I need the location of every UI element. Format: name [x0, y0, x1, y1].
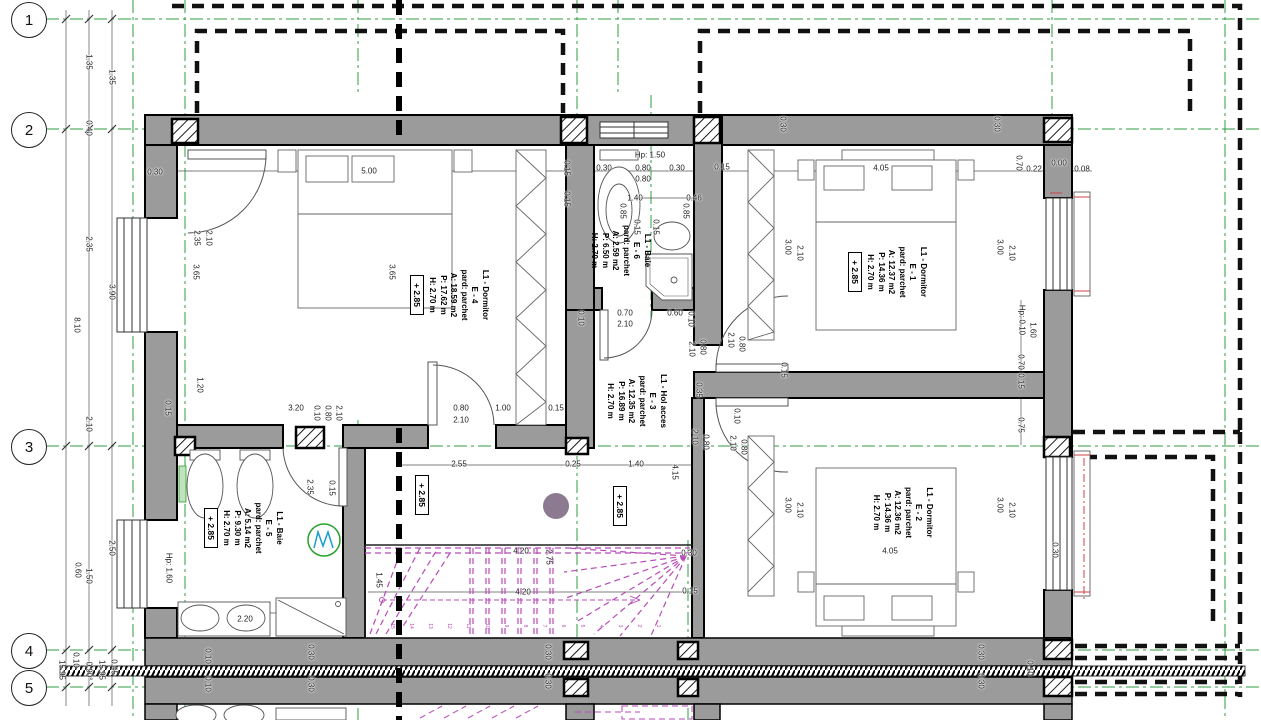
shower-e5: [276, 598, 346, 636]
grid-axis-bubble-5: 5: [11, 670, 47, 706]
dimension-label: 0.15: [563, 191, 572, 207]
dimension-label: 2.10: [691, 429, 700, 445]
door-closet-e4: [188, 150, 266, 233]
stair-tread-number: 7: [541, 625, 547, 628]
window-left-2: [117, 520, 147, 608]
room-area: A: 12.35 m2: [626, 366, 637, 436]
grid-axis-bubble-1: 1: [11, 2, 47, 38]
dimension-label: 0.80: [738, 336, 747, 352]
stair-tread-number: 12: [446, 623, 452, 629]
room-height: H: 2.70 m: [589, 203, 600, 298]
dimension-label: 0.25: [565, 460, 581, 469]
room-code: E - 3: [647, 366, 658, 436]
room-perimeter: P: 14.36 m: [876, 228, 887, 316]
dimension-label: 0.85: [682, 203, 691, 219]
room-name: L1 - Dormitor: [918, 228, 929, 316]
room-height: H: 2.70 m: [221, 492, 232, 564]
room-name: L1 - Dormitor: [924, 470, 935, 555]
floor-plan-drawing: [0, 0, 1261, 720]
room-name: L1 - Baie: [274, 492, 285, 564]
grid-axis-label: 4: [25, 643, 33, 660]
room-code: E - 2: [913, 470, 924, 555]
room-code: E - 1: [907, 228, 918, 316]
dimension-label: 0.30: [307, 644, 316, 660]
dimension-label: 1.40: [628, 460, 644, 469]
dimension-label: 2.20: [237, 615, 253, 624]
dimension-label: 0.15: [563, 160, 572, 176]
dimension-label: 4.15: [671, 464, 680, 480]
dimension-label: 0.30: [1051, 542, 1060, 558]
wardrobe-e1: [748, 150, 774, 340]
stair-tread-number: 3: [617, 625, 623, 628]
stair-tread-number: 6: [560, 625, 566, 628]
room-area: A: 12.37 m2: [886, 228, 897, 316]
column-dot: [543, 493, 569, 519]
dimension-label: 1.45: [375, 572, 384, 588]
level-marker: + 2.85: [204, 508, 218, 548]
room-height: H: 2.70 m: [605, 366, 616, 436]
dimension-label: 3.00: [996, 239, 1005, 255]
dimension-label: 0.46: [686, 194, 702, 203]
dimension-label: 2.10: [85, 416, 94, 432]
dimension-label: 0.80: [635, 175, 651, 184]
dimension-label: 0.30: [779, 116, 788, 132]
dimension-label: 0.10: [1026, 660, 1035, 676]
dimension-label: 3.00: [996, 497, 1005, 513]
wardrobe-e2: [748, 436, 774, 596]
room-name: L1 - Dormitor: [480, 245, 491, 345]
dimension-label: 0.30: [993, 116, 1002, 132]
dimension-label: 0.15: [548, 404, 564, 413]
room-floor-finish: pard: parchet: [903, 470, 914, 555]
dimension-label: 0.15: [328, 480, 337, 496]
level-marker: + 2.85: [613, 486, 627, 526]
hall-level-marker-1: + 2.85: [414, 462, 432, 528]
dimension-label: 0.10: [687, 311, 696, 327]
stair-tread-number: 5: [579, 625, 585, 628]
dimension-label: 2.55: [451, 460, 467, 469]
dimension-label: 1.00: [495, 404, 511, 413]
room-floor-finish: pard: parchet: [637, 366, 648, 436]
stair-tread-number: 8: [522, 625, 528, 628]
dimension-label: 15.95: [58, 660, 67, 680]
dimension-label: Hp: 1.60: [165, 553, 174, 583]
dimension-label: 0.10: [72, 652, 81, 668]
dimension-label: 3.65: [388, 264, 397, 280]
dimension-label: 0.10: [204, 648, 213, 664]
dimension-label: 1.35: [85, 54, 94, 70]
room-label-e2: L1 - Dormitor E - 2 pard: parchet A: 12.…: [871, 470, 934, 555]
stair-tread-number: 14: [408, 623, 414, 629]
grid-axis-bubble-3: 3: [11, 429, 47, 465]
dimension-label: 0.80: [324, 405, 333, 421]
dimension-label: 0.80: [740, 439, 749, 455]
dimension-label: 0.15: [633, 219, 642, 235]
dimension-label: 0.45: [110, 659, 119, 675]
dimension-label: 1.60: [1029, 322, 1038, 338]
dimension-label: 0.10: [313, 405, 322, 421]
dimension-label: 0.30: [977, 673, 986, 689]
room-height: H: 2.70 m: [427, 245, 438, 345]
room-perimeter: P: 14.36 m: [882, 470, 893, 555]
room-name: L1 - Baie: [642, 203, 653, 298]
dimension-label: 0.75: [1017, 417, 1026, 433]
dimension-label: 4.20: [515, 588, 531, 597]
stair-tread-number: 9: [503, 625, 509, 628]
dimension-label: 4.05: [882, 547, 898, 556]
dimension-label: 0.08: [1074, 165, 1090, 174]
dimension-label: 0.80: [635, 164, 651, 173]
dimension-label: 0.70: [1017, 354, 1026, 370]
dimension-label: 0.60: [74, 562, 83, 578]
stairs-lower-unit: [420, 706, 692, 719]
dimension-label: 2.35: [85, 236, 94, 252]
dimension-label: Hp: 1.50: [635, 151, 665, 160]
dimension-label: 0.10: [204, 676, 213, 692]
door-e5: [283, 448, 347, 506]
dimension-label: 2.10: [1008, 245, 1017, 261]
stair-tread-number: 1: [655, 625, 661, 628]
stair-tread-number: 13: [427, 623, 433, 629]
room-perimeter: P: 17.62 m: [438, 245, 449, 345]
dimension-label: 2.35: [306, 479, 315, 495]
dimension-label: 0.15: [652, 219, 661, 235]
hall-level-marker-2: + 2.85: [612, 476, 630, 536]
room-floor-finish: pard: parchet: [897, 228, 908, 316]
dimension-label: 0.15: [682, 587, 698, 596]
dimension-label: 2.10: [796, 245, 805, 261]
dimension-label: 0.30: [977, 644, 986, 660]
room-floor-finish: pard: parchet: [459, 245, 470, 345]
dimension-label: 3.00: [784, 497, 793, 513]
door-e6: [600, 310, 652, 360]
room-label-e5: L1 - Baie E - 5 pard: parchet A: 5.14 m2…: [204, 492, 284, 564]
dimension-label: 0.30: [669, 164, 685, 173]
dimension-label: 0.15: [780, 362, 789, 378]
dimension-label: 2.10: [453, 416, 469, 425]
dimension-label: Hp: 0.10: [1018, 305, 1027, 335]
dimension-label: 3.65: [192, 264, 201, 280]
dimension-label: 0.10: [577, 310, 586, 326]
dimension-label: 3.90: [108, 284, 117, 300]
stair-tread-number: 4: [598, 625, 604, 628]
dimension-label: 2.10: [335, 405, 344, 421]
stair-tread-number: 15: [389, 623, 395, 629]
dimension-label: 0.85: [619, 203, 628, 219]
dimension-label: 2.50: [108, 540, 117, 556]
dimension-label: 0.30: [307, 676, 316, 692]
dimension-label: 2.10: [796, 502, 805, 518]
grid-axis-label: 3: [25, 439, 33, 456]
grid-axis-label: 2: [25, 122, 33, 139]
dimension-label: 0.10: [733, 408, 742, 424]
grid-axis-label: 5: [25, 680, 33, 697]
room-label-e1: L1 - Dormitor E - 1 pard: parchet A: 12.…: [848, 228, 928, 316]
dimension-label: 0.70: [617, 309, 633, 318]
stairs-walk-line: [380, 596, 641, 604]
window-bath-top: [600, 122, 668, 138]
room-label-e3: L1 - Hol acces E - 3 pard: parchet A: 12…: [605, 366, 668, 436]
dimension-label: 0.30: [544, 644, 553, 660]
room-floor-finish: pard: parchet: [253, 492, 264, 564]
dimension-label: 0.70: [1015, 155, 1024, 171]
dimension-label: 0.90°: [85, 662, 94, 681]
window-left-1: [117, 218, 147, 332]
grid-axis-label: 1: [25, 12, 33, 29]
room-height: H: 2.70 m: [871, 470, 882, 555]
dimension-label: 1.50: [85, 568, 94, 584]
dimension-label: 0.80: [702, 434, 711, 450]
dimension-label: 0.30: [147, 168, 163, 177]
dimension-label: 0.35: [695, 382, 704, 398]
room-name: L1 - Hol acces: [658, 366, 669, 436]
room-perimeter: P: 16.89 m: [616, 366, 627, 436]
dimension-label: 0.22: [1026, 165, 1042, 174]
dimension-label: 15.95: [98, 660, 107, 680]
washing-machine-icon: [308, 524, 340, 556]
dimension-label: 0.60: [667, 309, 683, 318]
room-label-e4: L1 - Dormitor E - 4 pard: parchet A: 18.…: [410, 245, 490, 345]
grid-axis-bubble-2: 2: [11, 112, 47, 148]
stair-tread-number: 10: [484, 623, 490, 629]
dimension-label: 0.30: [544, 673, 553, 689]
dimension-label: 5.00: [361, 167, 377, 176]
floor-plan-sheet: 1 2 3 4 5 L1 - Dormitor E - 4 pard: parc…: [0, 0, 1261, 720]
room-area: A: 12.36 m2: [892, 470, 903, 555]
grid-axis-bubble-4: 4: [11, 633, 47, 669]
level-marker: + 2.85: [410, 275, 424, 315]
stair-tread-number: 11: [465, 623, 471, 628]
dimension-label: 0.15: [1017, 373, 1026, 389]
level-marker: + 2.85: [848, 252, 862, 292]
cistern-e5: [179, 466, 186, 502]
section-hatch-band: [60, 666, 1245, 676]
dimension-label: 3.00: [784, 239, 793, 255]
room-code: E - 4: [469, 245, 480, 345]
dimension-label: 2.10: [205, 230, 214, 246]
dimension-label: 2.10: [617, 320, 633, 329]
room-code: E - 6: [631, 203, 642, 298]
dimension-label: 2.10: [729, 435, 738, 451]
dimension-label: 1.20: [196, 377, 205, 393]
dimension-label: 3.20: [288, 404, 304, 413]
dimension-label: 0.15: [164, 400, 173, 416]
dimension-label: 8.10: [73, 317, 82, 333]
dimension-label: 2.10: [727, 332, 736, 348]
dimension-label: 2.10: [1008, 502, 1017, 518]
vanity-sinks-e5: [178, 602, 270, 636]
dimension-label: 0.80: [699, 339, 708, 355]
dimension-label: 2.35: [193, 230, 202, 246]
dimension-label: 2.75: [545, 549, 554, 565]
dimension-label: 1.35: [108, 69, 117, 85]
room-area: A: 5.14 m2: [242, 492, 253, 564]
dimension-label: 4.05: [873, 164, 889, 173]
room-area: A: 18.59 m2: [448, 245, 459, 345]
dimension-label: 0.40: [85, 120, 94, 136]
window-right-1: [1046, 192, 1090, 296]
wardrobe-e4: [516, 150, 546, 425]
dimension-label: 0.30: [681, 549, 697, 558]
room-perimeter: P: 6.50 m: [600, 203, 611, 298]
dimension-label: 2.10: [688, 341, 697, 357]
dimension-label: 0.30: [596, 164, 612, 173]
dimension-label: 0.15: [714, 163, 730, 172]
room-height: H: 2.70 m: [865, 228, 876, 316]
window-right-2: [1046, 451, 1090, 596]
dimension-label: 0.80: [453, 404, 469, 413]
room-perimeter: P: 9.30 m: [232, 492, 243, 564]
level-marker: + 2.85: [415, 475, 429, 515]
room-code: E - 5: [263, 492, 274, 564]
stair-tread-number: 2: [636, 625, 642, 628]
dimension-label: 1.40: [627, 194, 643, 203]
fixtures-lower-unit: [176, 705, 346, 720]
dimension-label: 0.00: [1051, 159, 1067, 168]
dimension-label: 4.20: [513, 547, 529, 556]
